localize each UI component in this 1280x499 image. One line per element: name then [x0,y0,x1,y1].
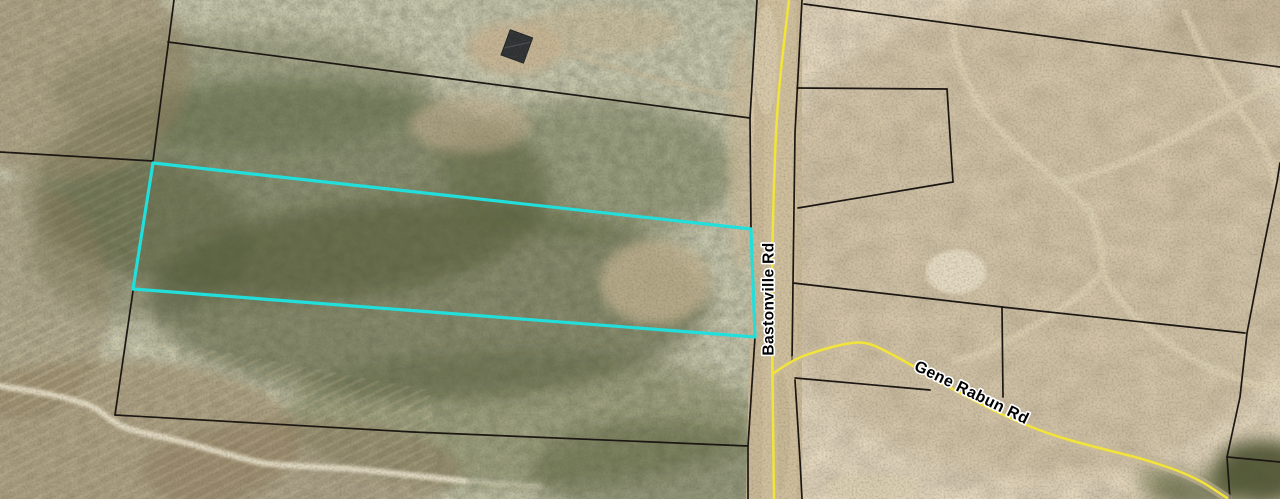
aerial-imagery [0,0,1280,499]
aerial-map-viewport[interactable]: Bastonville Rd Gene Rabun Rd [0,0,1280,499]
aerial-map-canvas[interactable]: Bastonville Rd Gene Rabun Rd [0,0,1280,499]
parcel-line-east-parcel-north [797,88,947,89]
road-label-bastonville: Bastonville Rd [760,242,777,355]
parcel-line-east-mid-vertical-stub [1002,307,1003,397]
